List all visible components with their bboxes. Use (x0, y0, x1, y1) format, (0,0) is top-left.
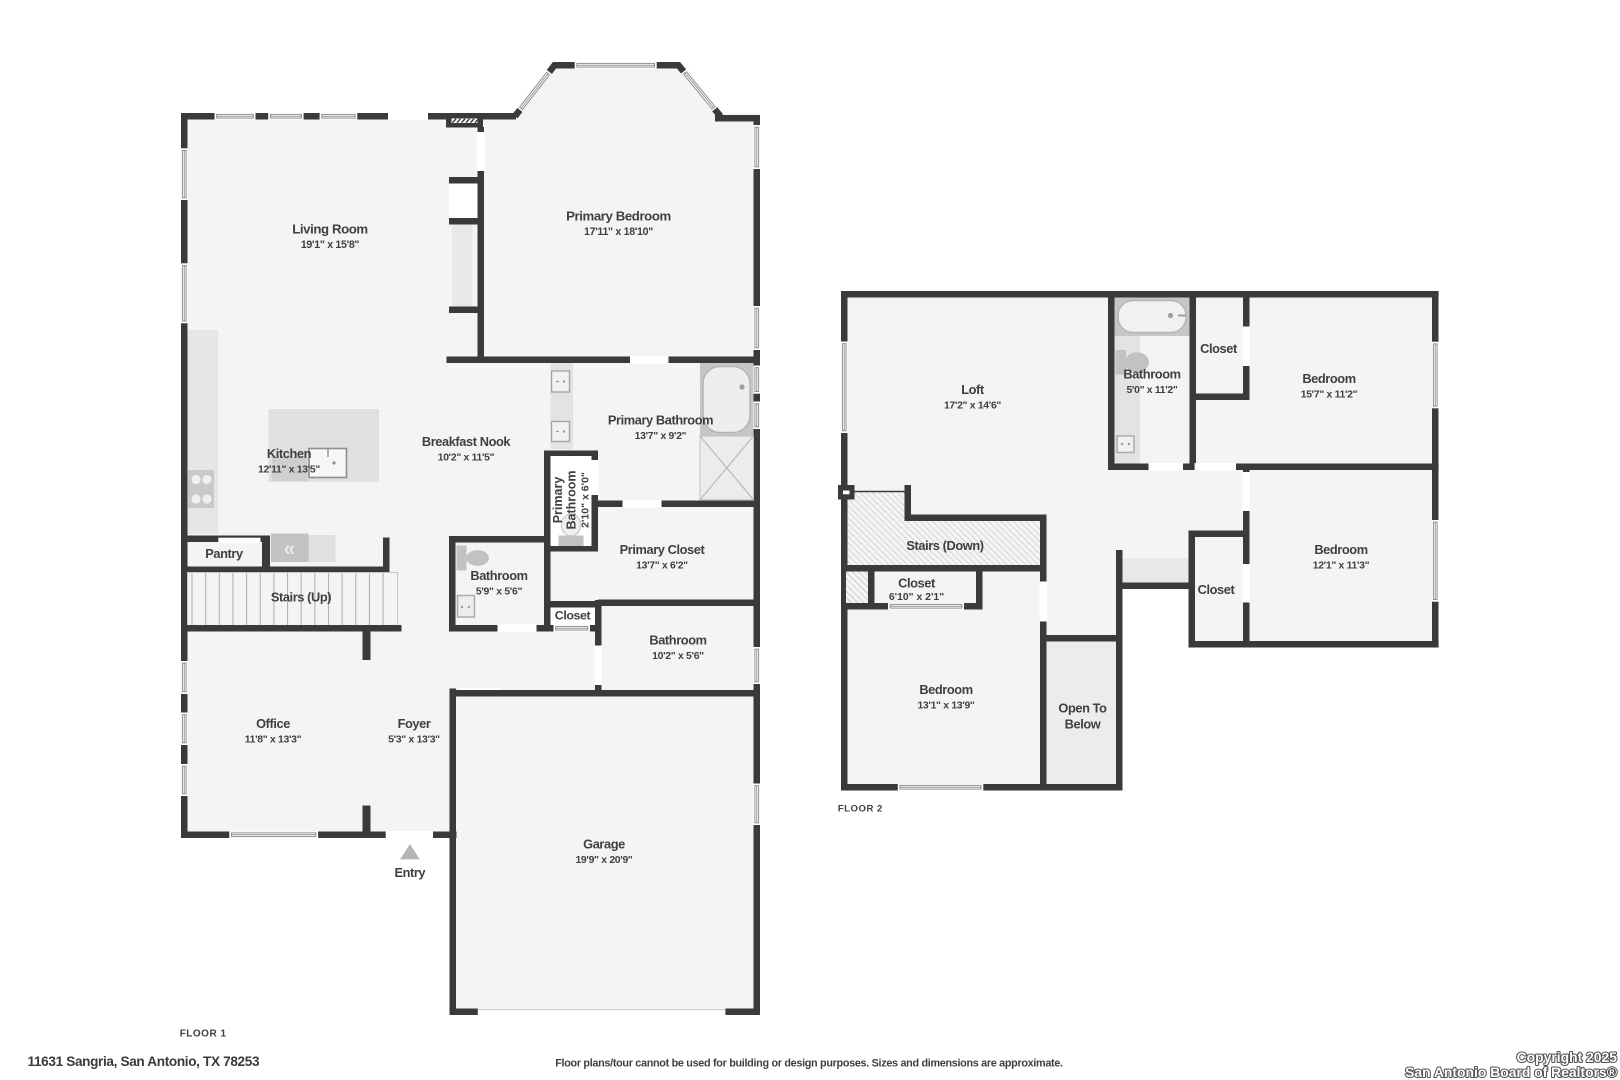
svg-text:Office: Office (256, 716, 290, 731)
svg-text:Stairs (Up): Stairs (Up) (271, 590, 331, 605)
svg-text:Bedroom: Bedroom (919, 682, 972, 697)
svg-text:FLOOR 1: FLOOR 1 (180, 1029, 227, 1040)
svg-text:Closet: Closet (555, 609, 591, 623)
svg-text:Pantry: Pantry (205, 546, 244, 561)
svg-text:10'2" x 11'5": 10'2" x 11'5" (438, 453, 495, 464)
svg-text:Breakfast Nook: Breakfast Nook (422, 434, 512, 449)
svg-text:Closet: Closet (1200, 341, 1238, 356)
svg-text:Kitchen: Kitchen (267, 446, 312, 461)
svg-text:15'7" x 11'2": 15'7" x 11'2" (1301, 390, 1358, 401)
svg-text:Loft: Loft (961, 382, 985, 397)
svg-text:13'7" x 9'2": 13'7" x 9'2" (635, 431, 687, 442)
svg-text:Living Room: Living Room (292, 222, 367, 237)
svg-text:Floor plans/tour cannot be use: Floor plans/tour cannot be used for buil… (555, 1058, 1063, 1070)
svg-text:17'2" x 14'6": 17'2" x 14'6" (944, 401, 1001, 412)
svg-text:6'10" x 2'1": 6'10" x 2'1" (889, 592, 944, 603)
svg-text:Bathroom: Bathroom (649, 633, 706, 648)
svg-text:Foyer: Foyer (398, 716, 431, 731)
svg-text:11'8" x 13'3": 11'8" x 13'3" (245, 735, 302, 746)
svg-text:Primary Closet: Primary Closet (620, 542, 706, 557)
svg-text:Bedroom: Bedroom (1314, 542, 1367, 557)
svg-text:12'1" x 11'3": 12'1" x 11'3" (1313, 561, 1370, 572)
svg-text:5'9" x 5'6": 5'9" x 5'6" (476, 587, 523, 598)
svg-text:17'11" x 18'10": 17'11" x 18'10" (584, 226, 653, 238)
svg-text:Primary Bathroom: Primary Bathroom (608, 413, 713, 428)
svg-text:13'7" x 6'2": 13'7" x 6'2" (636, 561, 688, 572)
svg-text:Bathroom: Bathroom (565, 470, 579, 529)
svg-text:San Antonio Board of Realtors®: San Antonio Board of Realtors® (1405, 1064, 1618, 1080)
svg-text:Closet: Closet (898, 576, 936, 591)
svg-text:19'1" x 15'8": 19'1" x 15'8" (301, 239, 360, 251)
svg-text:Below: Below (1065, 717, 1101, 732)
svg-text:2'10" x 6'0": 2'10" x 6'0" (580, 472, 592, 528)
svg-text:FLOOR 2: FLOOR 2 (838, 804, 883, 815)
svg-text:11631 Sangria, San Antonio, TX: 11631 Sangria, San Antonio, TX 78253 (28, 1054, 260, 1069)
svg-text:Bathroom: Bathroom (1123, 367, 1180, 382)
svg-text:19'9" x 20'9": 19'9" x 20'9" (575, 855, 632, 866)
svg-text:Closet: Closet (1198, 582, 1236, 597)
svg-text:12'11" x 13'5": 12'11" x 13'5" (258, 465, 320, 476)
svg-text:Garage: Garage (583, 837, 625, 852)
svg-text:Copyright 2025: Copyright 2025 (1517, 1049, 1618, 1065)
svg-text:Primary: Primary (551, 477, 565, 524)
svg-text:«: « (284, 538, 296, 561)
svg-text:5'0" x 11'2": 5'0" x 11'2" (1126, 385, 1177, 396)
svg-text:Bathroom: Bathroom (470, 568, 527, 583)
svg-text:Bedroom: Bedroom (1302, 371, 1355, 386)
svg-text:5'3" x 13'3": 5'3" x 13'3" (388, 735, 440, 746)
svg-text:10'2" x 5'6": 10'2" x 5'6" (652, 651, 704, 662)
svg-text:Primary Bedroom: Primary Bedroom (566, 209, 671, 224)
svg-text:Open To: Open To (1058, 701, 1107, 716)
svg-text:Entry: Entry (394, 865, 426, 880)
svg-text:Stairs (Down): Stairs (Down) (906, 538, 983, 553)
svg-text:13'1" x 13'9": 13'1" x 13'9" (917, 701, 974, 712)
